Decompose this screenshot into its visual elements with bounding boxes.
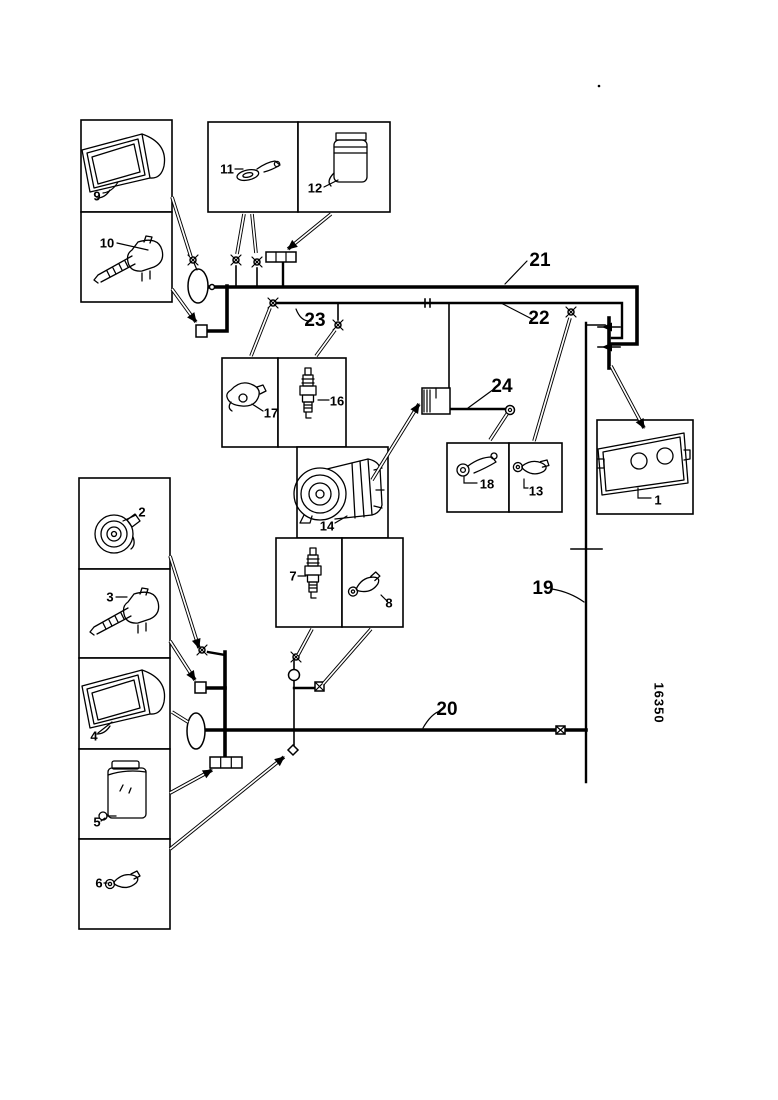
multi-connector-bar-top <box>266 252 296 262</box>
callout-10: 10 <box>100 236 114 251</box>
grommet-nipple <box>210 285 215 290</box>
callout-6: 6 <box>95 876 102 891</box>
callout-18: 18 <box>480 477 494 492</box>
callout-box-6 <box>79 839 170 929</box>
callout-3: 3 <box>106 590 113 605</box>
harness-label-24: 24 <box>491 376 512 398</box>
harness-label-20: 20 <box>436 699 457 721</box>
lead-wires <box>170 197 644 849</box>
callout-box-12 <box>298 122 390 212</box>
callout-5: 5 <box>93 815 100 830</box>
harness-lines <box>203 262 637 782</box>
clip-symbol <box>252 257 262 267</box>
callout-2: 2 <box>138 505 145 520</box>
callout-8: 8 <box>385 596 392 611</box>
callout-17: 17 <box>264 406 278 421</box>
callout-box-10 <box>81 212 172 302</box>
main-harness-wire-21 <box>208 287 637 344</box>
part-number-vertical: 16350 <box>652 682 667 723</box>
clip-symbol <box>268 298 278 308</box>
callout-14: 14 <box>320 519 334 534</box>
left-branch-drop <box>208 286 227 331</box>
diamond-connector <box>288 745 298 755</box>
callout-7: 7 <box>289 569 296 584</box>
harness-label-21: 21 <box>529 250 550 272</box>
diagram-linework <box>0 0 778 1100</box>
callout-11: 11 <box>220 162 234 177</box>
callout-box-2 <box>79 478 170 569</box>
ring-connector-center <box>289 670 300 681</box>
firewall-grommet-lower <box>187 713 205 749</box>
callout-16: 16 <box>330 394 344 409</box>
callout-9: 9 <box>93 189 100 204</box>
clip-symbol <box>333 320 343 330</box>
ring-terminal-24 <box>506 406 515 415</box>
clip-symbol <box>231 255 241 265</box>
callout-box-8 <box>342 538 403 627</box>
multi-connector-bar-bottom <box>210 757 242 768</box>
connector-arrow-top <box>602 323 612 332</box>
callout-12: 12 <box>308 181 322 196</box>
harness-label-22: 22 <box>528 308 549 330</box>
callout-13: 13 <box>529 484 543 499</box>
connector-arrow-bottom <box>602 343 612 352</box>
callout-box-18 <box>447 443 509 512</box>
callout-4: 4 <box>90 729 97 744</box>
square-connector-upper <box>196 325 207 337</box>
wire-arrowheads <box>186 240 648 778</box>
scan-speck <box>598 85 601 88</box>
firewall-grommet-upper <box>188 269 208 303</box>
callout-boxes <box>79 120 693 929</box>
clip-symbol <box>566 307 576 317</box>
harness-label-19: 19 <box>532 578 553 600</box>
inline-connector-20 <box>556 726 565 734</box>
relay-box-24 <box>422 388 450 414</box>
wiring-parts-diagram: 1 2 3 4 5 6 7 8 9 10 11 12 13 14 16 17 1… <box>0 0 778 1100</box>
callout-1: 1 <box>654 493 661 508</box>
lower-left-branch-top-link <box>208 652 225 655</box>
harness-label-23: 23 <box>304 310 325 332</box>
callout-box-13 <box>509 443 562 512</box>
square-connector-lower <box>195 682 206 693</box>
